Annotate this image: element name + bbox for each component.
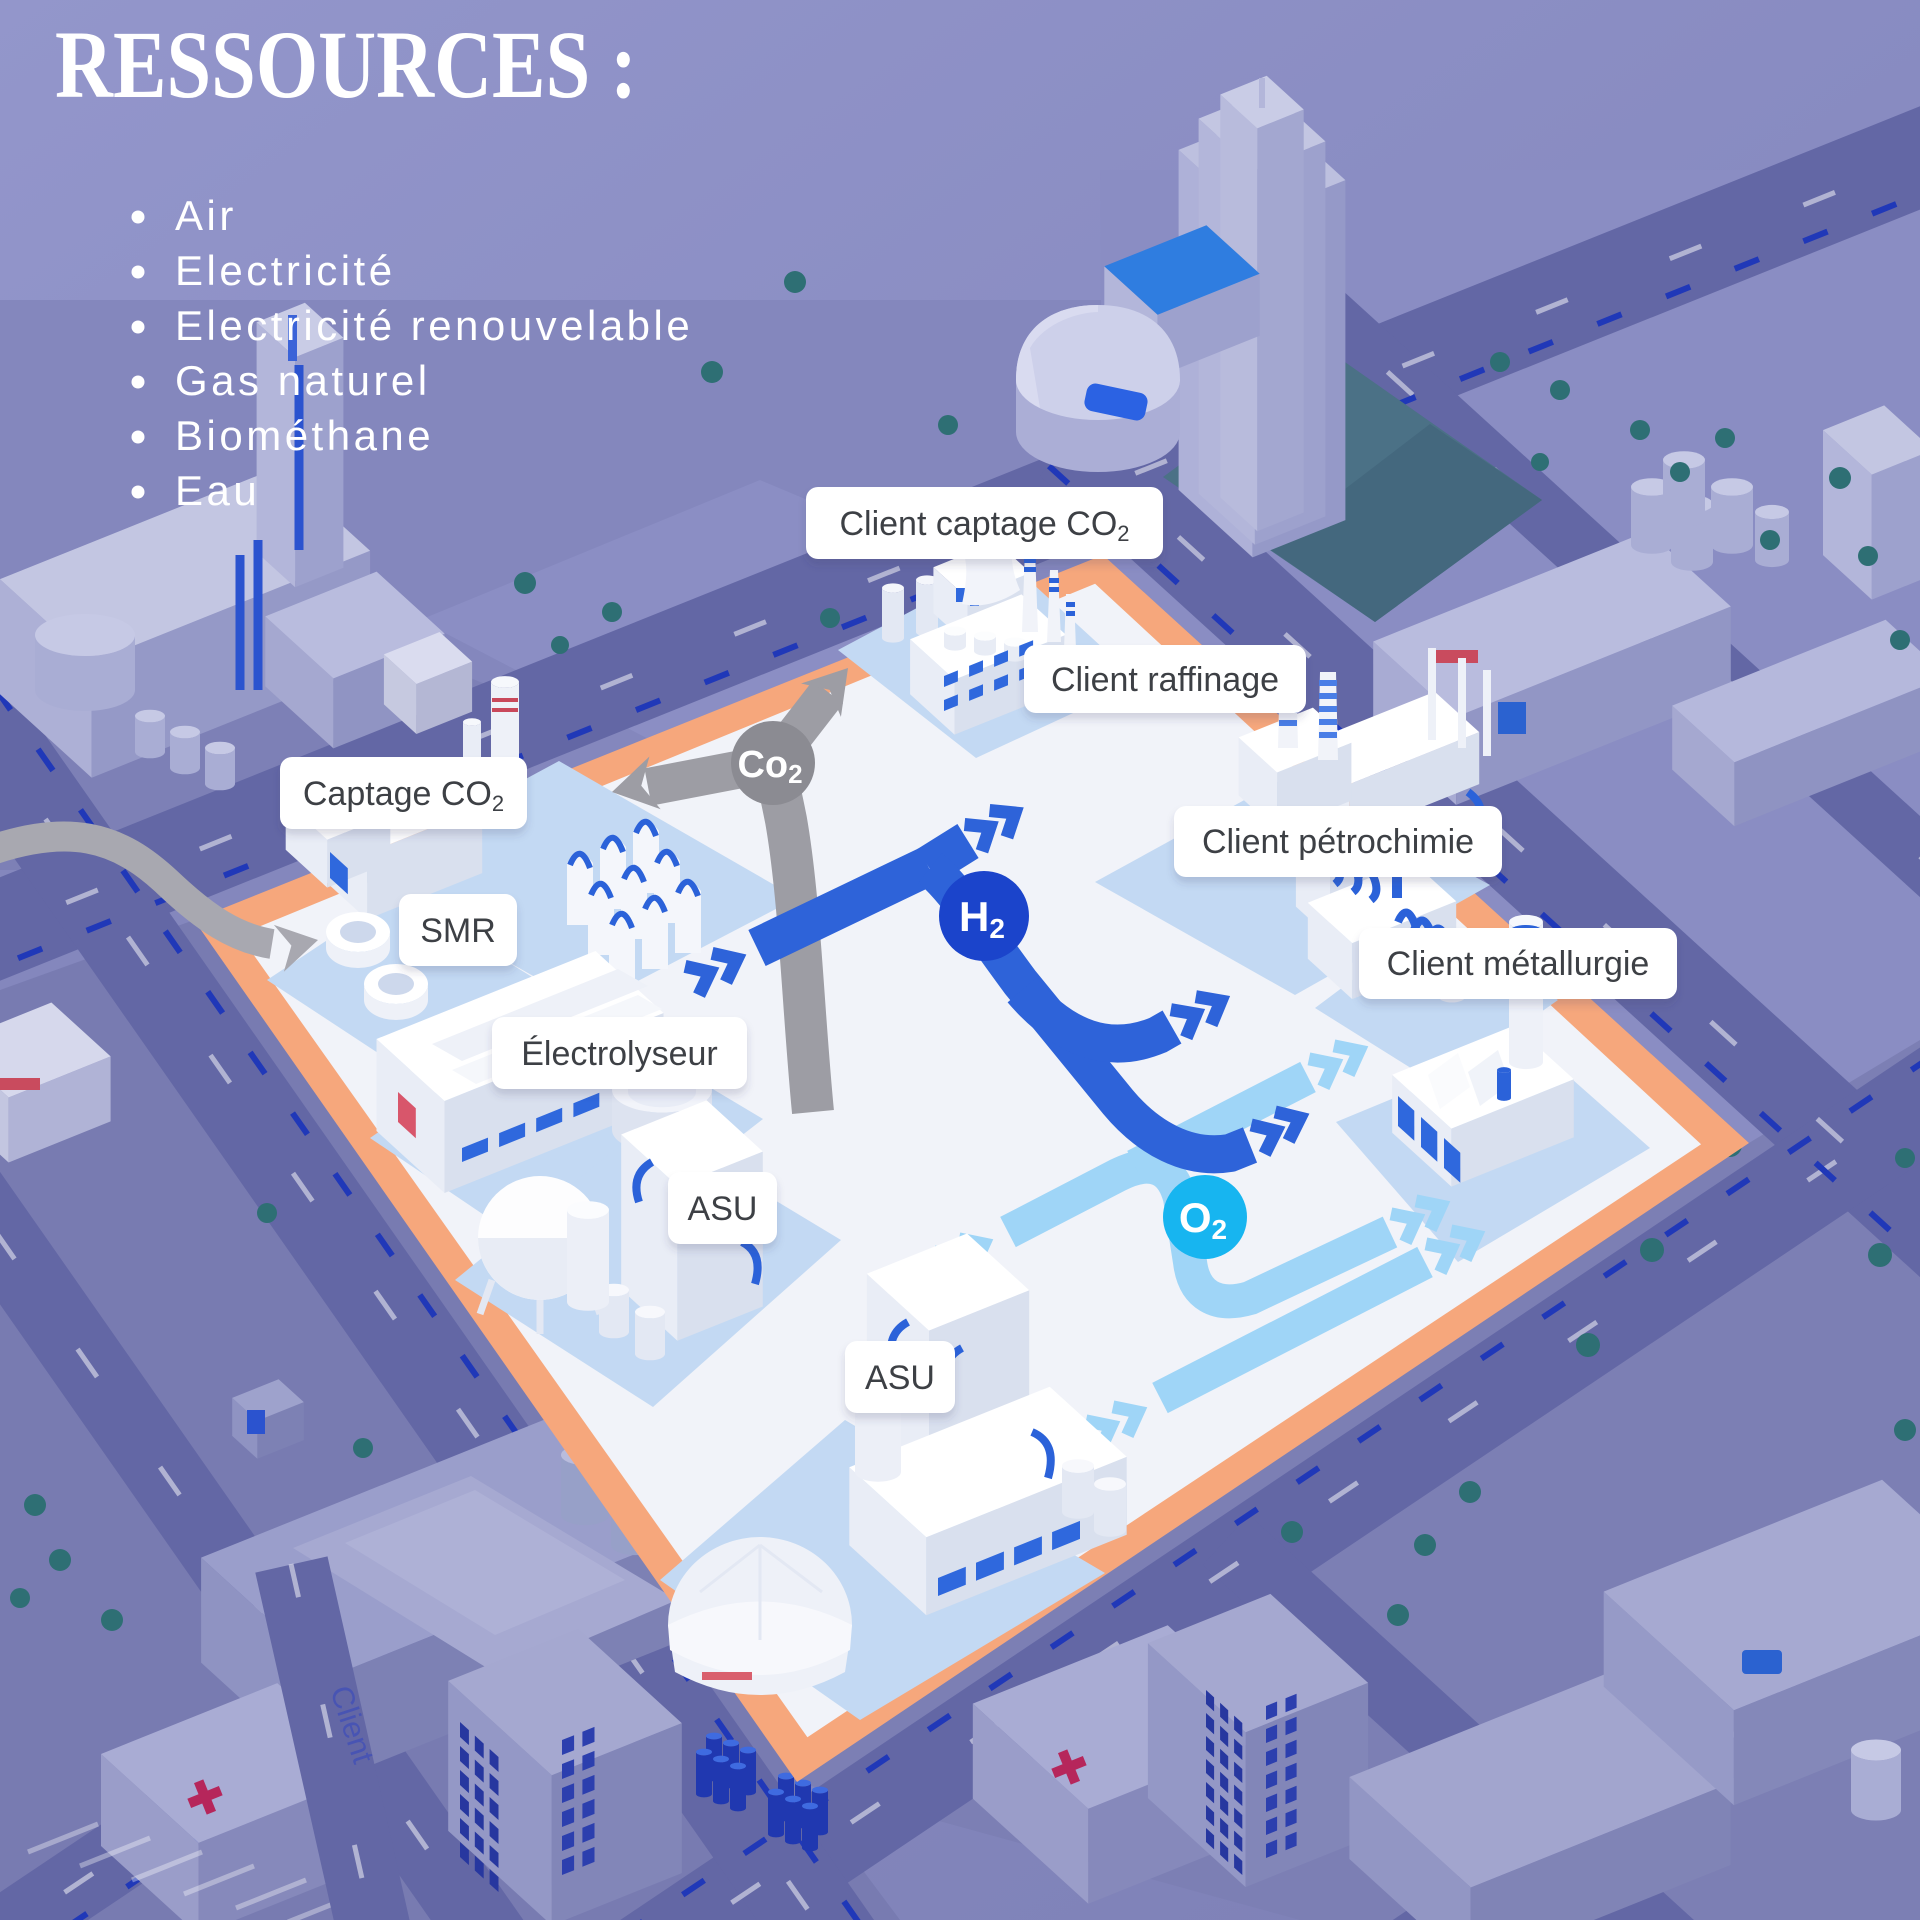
svg-text:RESSOURCES :: RESSOURCES : <box>55 11 637 118</box>
svg-text:Client pétrochimie: Client pétrochimie <box>1202 823 1474 861</box>
svg-text:Air: Air <box>175 192 237 239</box>
svg-text:ASU: ASU <box>865 1359 935 1397</box>
svg-text:Client métallurgie: Client métallurgie <box>1387 945 1650 983</box>
svg-text:Eau: Eau <box>175 467 260 514</box>
svg-text:ASU: ASU <box>688 1190 758 1228</box>
svg-text:Electricité: Electricité <box>175 247 396 294</box>
svg-text:SMR: SMR <box>420 912 496 950</box>
svg-text:Biométhane: Biométhane <box>175 412 434 459</box>
svg-text:Captage CO2: Captage CO2 <box>303 775 504 816</box>
svg-text:Client raffinage: Client raffinage <box>1051 661 1279 699</box>
svg-text:Electricité renouvelable: Electricité renouvelable <box>175 302 693 349</box>
svg-text:Client captage CO2: Client captage CO2 <box>839 505 1129 546</box>
svg-text:Électrolyseur: Électrolyseur <box>521 1035 718 1073</box>
svg-text:Gas naturel: Gas naturel <box>175 357 431 404</box>
